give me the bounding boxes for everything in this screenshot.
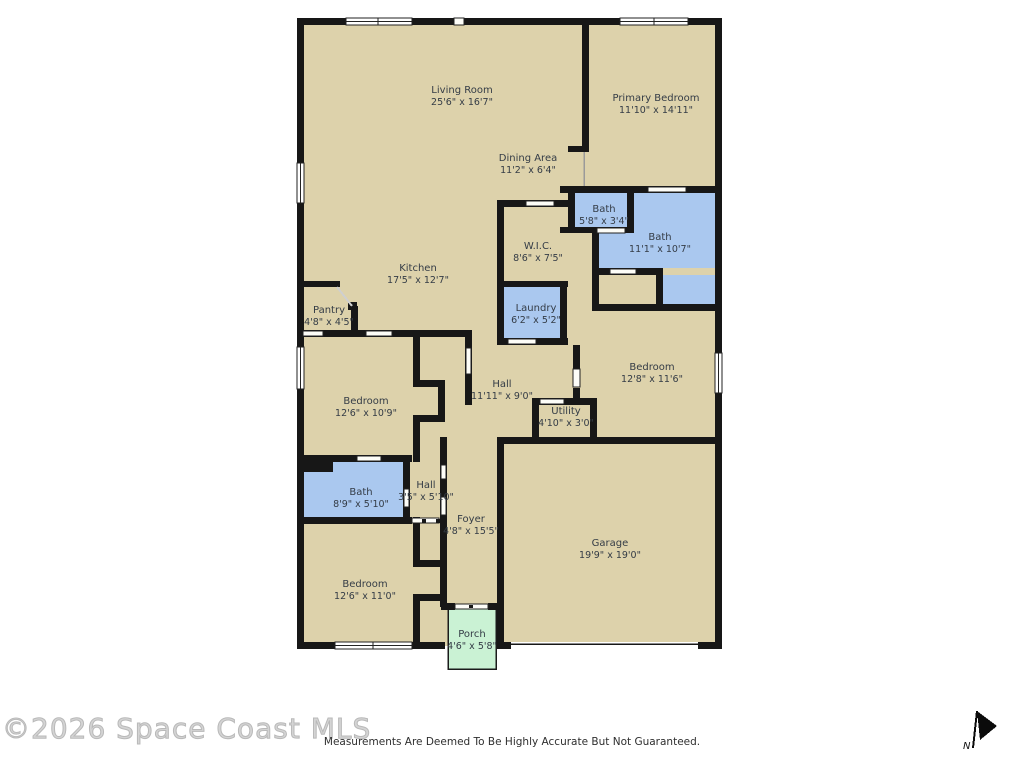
measurement-disclaimer: Measurements Are Deemed To Be Highly Acc… xyxy=(324,736,700,748)
bath-primary-floor-lower xyxy=(663,275,715,304)
porch-floor xyxy=(448,607,496,669)
north-arrow-icon xyxy=(973,711,997,748)
garage-door xyxy=(511,642,698,649)
floorplan-drawing xyxy=(0,0,1024,768)
mls-watermark: ©2026 Space Coast MLS xyxy=(2,712,371,745)
bath-primary-floor-mid xyxy=(599,233,715,268)
bath-primary-floor-upper xyxy=(634,193,715,233)
laundry-floor xyxy=(504,287,560,338)
bath-small-floor xyxy=(575,193,627,227)
floorplan-page: Living Room 25'6" x 16'7" Primary Bedroo… xyxy=(0,0,1024,768)
north-label: N xyxy=(963,741,970,752)
